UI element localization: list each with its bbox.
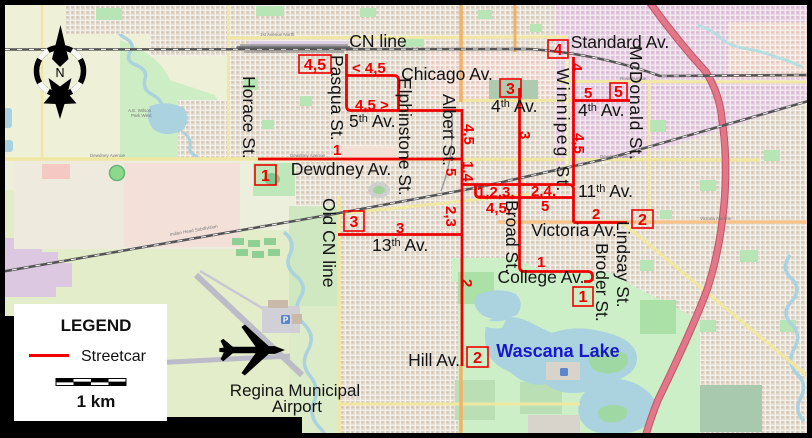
svg-text:5: 5	[541, 198, 549, 215]
svg-text:Streetcar: Streetcar	[81, 348, 147, 365]
svg-text:1,4,: 1,4,	[459, 161, 476, 186]
svg-text:5: 5	[614, 84, 623, 101]
svg-text:Horace St.: Horace St.	[239, 76, 259, 159]
svg-text:Standard Av.: Standard Av.	[571, 32, 670, 52]
svg-text:3: 3	[516, 131, 533, 139]
svg-text:Dewdney Avenue: Dewdney Avenue	[290, 153, 325, 158]
svg-text:2: 2	[638, 212, 647, 229]
svg-text:4,5: 4,5	[460, 124, 477, 145]
svg-text:11th Av.: 11th Av.	[578, 181, 633, 201]
svg-text:5th Av.: 5th Av.	[349, 111, 396, 131]
svg-text:1: 1	[579, 289, 588, 306]
svg-text:Old CN line: Old CN line	[319, 198, 339, 287]
svg-text:2,3: 2,3	[442, 206, 459, 227]
svg-text:Wascana Lake: Wascana Lake	[496, 341, 619, 361]
svg-text:2: 2	[458, 279, 475, 287]
svg-text:Broder St.: Broder St.	[592, 243, 612, 322]
svg-text:13th Av.: 13th Av.	[372, 235, 428, 255]
svg-text:< 4,5: < 4,5	[352, 60, 386, 77]
svg-text:Airport: Airport	[272, 397, 322, 416]
svg-text:4th Av.: 4th Av.	[578, 100, 625, 120]
svg-text:1: 1	[333, 142, 341, 159]
svg-text:Albert St.: Albert St.	[439, 94, 459, 166]
svg-text:3: 3	[350, 214, 359, 231]
svg-text:1,2,3,: 1,2,3,	[477, 184, 515, 201]
svg-text:McDonald St.: McDonald St.	[626, 46, 646, 161]
svg-text:Pasqua St.: Pasqua St.	[327, 55, 347, 141]
svg-text:1st Avenue North: 1st Avenue North	[260, 32, 295, 37]
svg-text:Dewdney Avenue: Dewdney Avenue	[90, 153, 125, 158]
svg-text:4,5: 4,5	[304, 57, 326, 74]
svg-text:2: 2	[473, 350, 482, 367]
svg-text:Hill Av.: Hill Av.	[408, 350, 460, 370]
svg-text:1: 1	[261, 168, 270, 185]
svg-text:Dewdney Av.: Dewdney Av.	[291, 159, 392, 179]
svg-text:4: 4	[554, 42, 563, 59]
svg-text:N: N	[55, 66, 64, 80]
svg-text:4th Av.: 4th Av.	[491, 96, 538, 116]
svg-text:P: P	[283, 316, 289, 325]
svg-text:LEGEND: LEGEND	[61, 316, 132, 335]
svg-text:Lindsay St.: Lindsay St.	[613, 221, 633, 308]
svg-text:Broad St.: Broad St.	[502, 200, 522, 273]
svg-text:5: 5	[442, 168, 459, 176]
svg-text:Park West: Park West	[131, 113, 152, 118]
svg-text:Victoria Av.: Victoria Av.	[531, 220, 617, 240]
svg-text:Victoria Avenue: Victoria Avenue	[700, 216, 732, 221]
svg-text:1 km: 1 km	[77, 392, 116, 411]
svg-text:Elphinstone St.: Elphinstone St.	[395, 78, 415, 196]
svg-text:Winnipeg St.: Winnipeg St.	[553, 68, 573, 194]
svg-text:CN line: CN line	[349, 31, 406, 51]
